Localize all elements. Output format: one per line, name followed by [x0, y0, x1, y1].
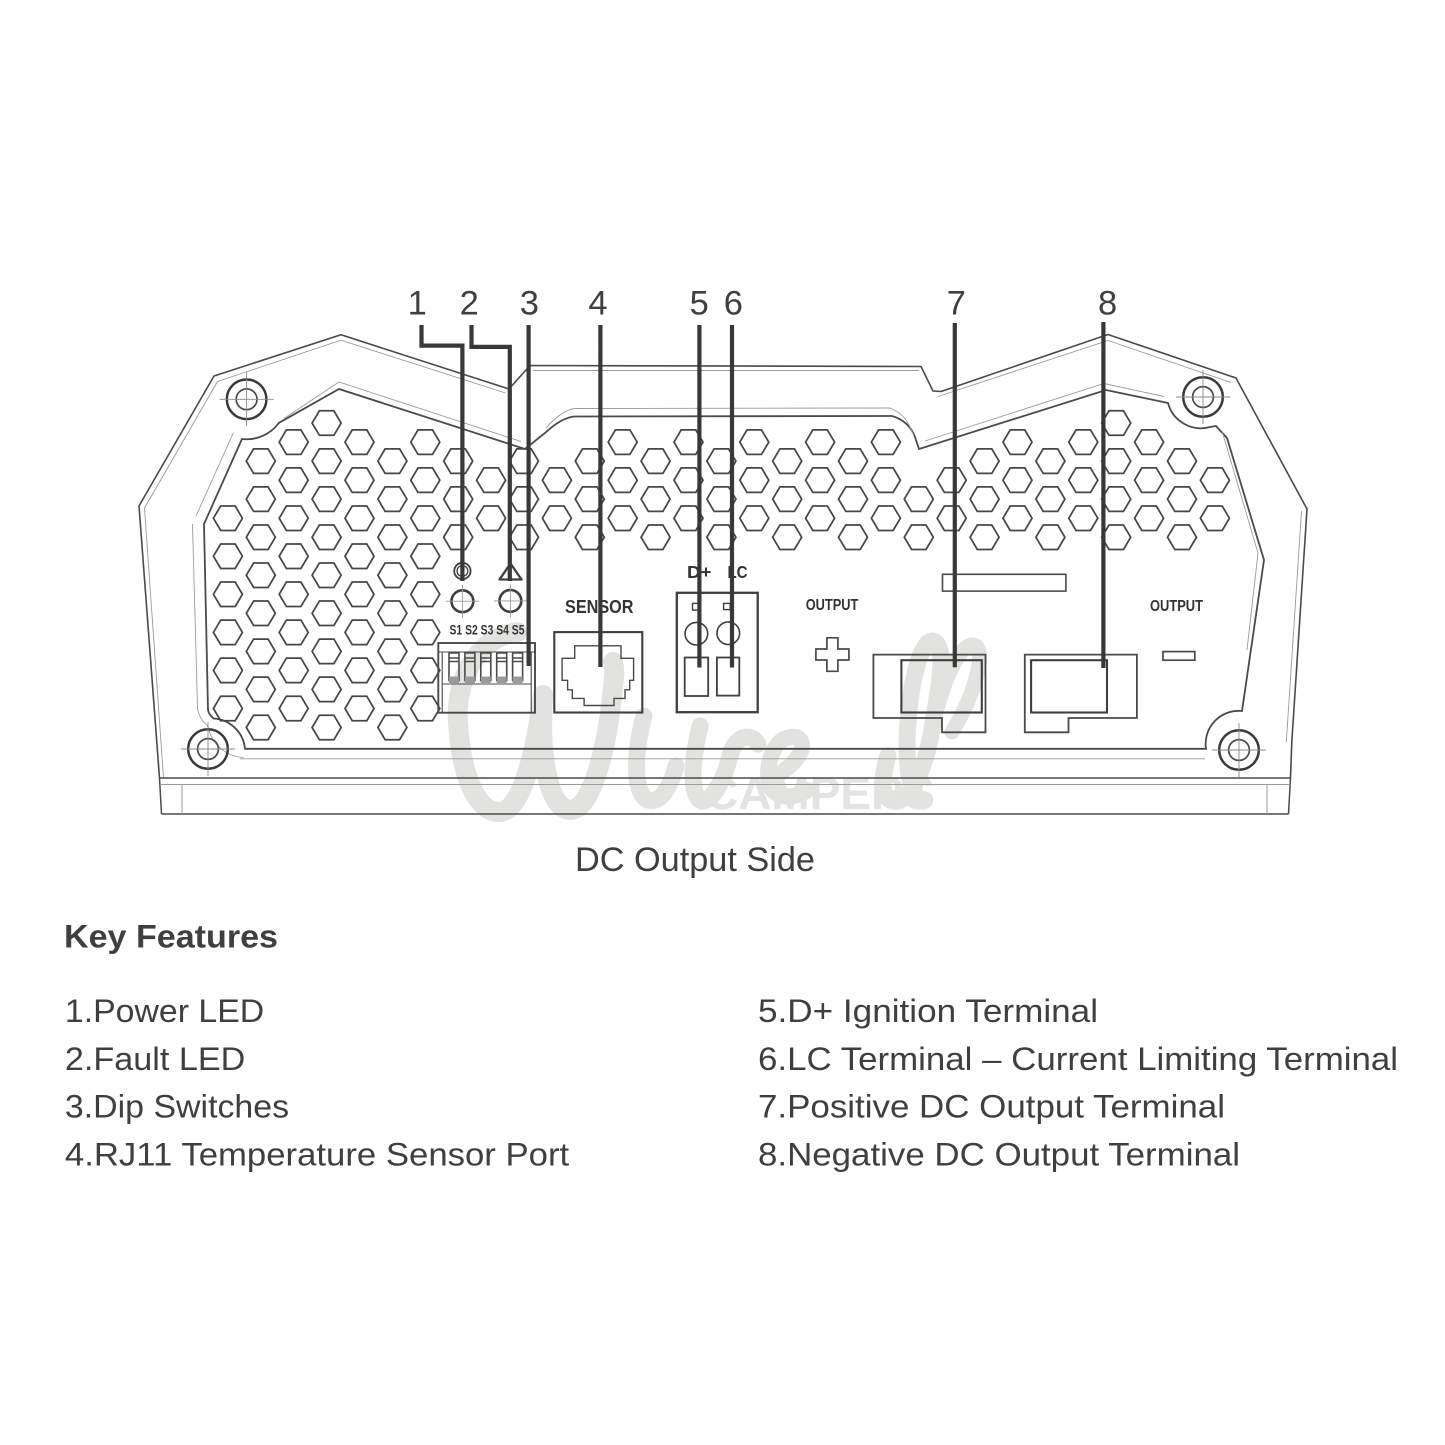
svg-text:2.Fault LED: 2.Fault LED	[65, 1041, 245, 1077]
svg-text:1.Power LED: 1.Power LED	[65, 993, 264, 1029]
svg-text:5: 5	[690, 285, 709, 323]
svg-text:7: 7	[947, 285, 966, 323]
svg-text:3: 3	[520, 285, 539, 323]
svg-text:4.RJ11 Temperature Sensor Port: 4.RJ11 Temperature Sensor Port	[65, 1137, 569, 1173]
svg-text:OUTPUT: OUTPUT	[1150, 598, 1203, 615]
svg-text:1: 1	[408, 285, 427, 323]
svg-text:8: 8	[1098, 285, 1117, 323]
svg-text:6.LC Terminal – Current Limiti: 6.LC Terminal – Current Limiting Termina…	[758, 1041, 1398, 1077]
svg-text:DC Output Side: DC Output Side	[575, 841, 815, 879]
svg-text:3.Dip Switches: 3.Dip Switches	[65, 1089, 289, 1125]
svg-text:S1 S2 S3 S4 S5: S1 S2 S3 S4 S5	[450, 623, 525, 638]
svg-text:CAMPERS: CAMPERS	[705, 768, 935, 819]
svg-text:6: 6	[724, 285, 743, 323]
svg-text:OUTPUT: OUTPUT	[806, 597, 859, 614]
svg-text:4: 4	[588, 285, 607, 323]
svg-text:8.Negative DC Output Terminal: 8.Negative DC Output Terminal	[758, 1137, 1240, 1173]
svg-text:5.D+ Ignition Terminal: 5.D+ Ignition Terminal	[758, 993, 1098, 1029]
svg-text:Key Features: Key Features	[64, 918, 278, 954]
svg-text:7.Positive DC Output Terminal: 7.Positive DC Output Terminal	[758, 1089, 1225, 1125]
svg-text:2: 2	[460, 285, 479, 323]
